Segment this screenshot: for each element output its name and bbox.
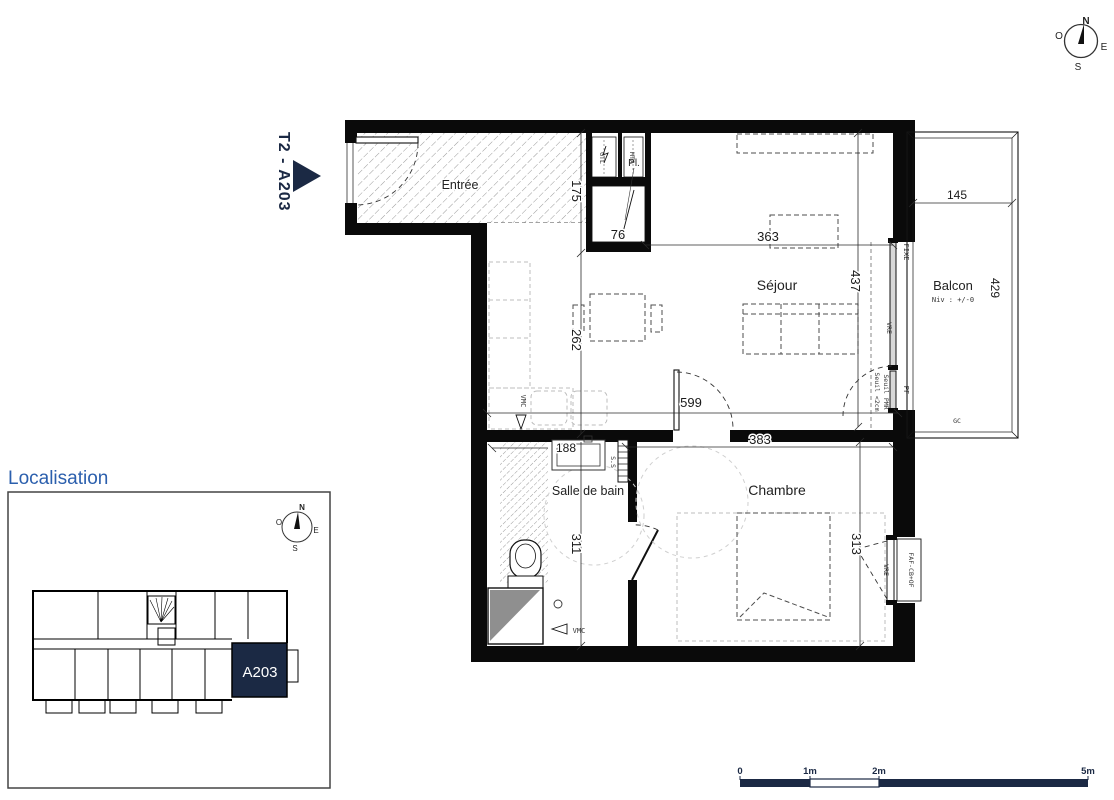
vmc-label-kitchen: VMC: [519, 395, 527, 408]
seuil-2cm-label: Seuil <2cm: [873, 372, 881, 411]
balcon-level-label: Niv : +/-0: [932, 296, 974, 304]
room-label-sdb: Salle de bain: [552, 484, 624, 498]
dim-313: 313: [849, 533, 864, 555]
vmc-triangle-icon-sdb: [552, 624, 567, 634]
entree-zone: Entrée: [347, 133, 586, 223]
scale-0: 0: [737, 766, 742, 777]
localisation-frame: [8, 492, 330, 788]
entrance-door-leaf: [356, 137, 418, 143]
mini-compass-s: S: [292, 544, 297, 553]
scale-bar: 0 1m 2m 5m: [737, 766, 1095, 787]
vmc-label-sdb: VMC: [573, 627, 586, 635]
fixed-window: [890, 242, 896, 366]
scale-5m: 5m: [1081, 766, 1095, 777]
dim-145: 145: [947, 188, 967, 202]
toilet: [508, 540, 543, 588]
localisation-section: Localisation N O E S: [8, 468, 330, 788]
floor-plan-page: T2 - A203 N O E S: [0, 0, 1114, 800]
sideboard: [737, 134, 873, 153]
compass-o: O: [1055, 31, 1063, 42]
shower-tray: [488, 588, 543, 644]
room-label-balcon: Balcon: [933, 278, 973, 293]
dim-175: 175: [569, 180, 584, 202]
pf-label: PF: [902, 386, 910, 394]
dim-363: 363: [757, 229, 779, 244]
dim-76: 76: [611, 227, 625, 242]
dim-437: 437: [848, 270, 863, 292]
vre-label-chambre: VRE: [882, 564, 890, 576]
faf-label: FAF-CB+OF: [907, 552, 915, 587]
sofa: [743, 304, 858, 354]
room-label-chambre: Chambre: [748, 482, 806, 498]
unit-marker: T2 - A203: [275, 132, 321, 212]
unit-a203-label: A203: [242, 664, 277, 681]
vmc-triangle-icon: [516, 415, 526, 429]
dim-383: 383: [749, 432, 771, 447]
dim-262: 262: [569, 329, 584, 351]
seuil-pmr-label: Seuil PMR: [882, 374, 890, 409]
compass-needle-icon: [1078, 24, 1084, 44]
dining-table: [573, 294, 662, 341]
mini-compass-n: N: [299, 503, 305, 512]
gtl-label: GTL: [598, 152, 606, 164]
kitchen-units: VMC: [489, 262, 607, 429]
compass-rose: N O E S: [1055, 16, 1108, 73]
vre-label-sejour: VRE: [885, 322, 893, 334]
compass-e: E: [1101, 42, 1108, 53]
floor-plan-drawing: T2 - A203 N O E S: [0, 0, 1114, 800]
towel-radiator: [618, 440, 628, 482]
unit-marker-label: T2 - A203: [275, 132, 292, 212]
unit-marker-arrow-icon: [293, 160, 321, 192]
floor-drain-icon: [554, 600, 562, 608]
scale-1m: 1m: [803, 766, 817, 777]
mini-compass-e: E: [313, 526, 318, 535]
gc-label: GC: [953, 417, 961, 425]
dim-188: 188: [556, 441, 576, 455]
scale-2m: 2m: [872, 766, 886, 777]
bed: [737, 513, 830, 620]
chambre-window: VRE FAF-CB+OF: [857, 535, 921, 605]
sdb-door-leaf: [632, 530, 658, 580]
dim-599: 599: [680, 395, 702, 410]
sdb-door-swing: [632, 525, 658, 530]
mini-compass-o: O: [276, 518, 282, 527]
chambre-zone: Chambre VRE FAF-CB+OF: [636, 446, 921, 641]
ss-label: S.S: [609, 456, 617, 468]
placard-label: Pl.: [628, 158, 640, 169]
dim-311: 311: [569, 534, 584, 555]
fixe-label: FIXE: [902, 244, 910, 261]
room-label-entree: Entrée: [442, 178, 479, 192]
room-label-sejour: Séjour: [757, 277, 798, 293]
compass-n: N: [1082, 16, 1089, 27]
compass-s: S: [1075, 62, 1082, 73]
tv-unit: [770, 215, 838, 248]
localisation-title: Localisation: [8, 468, 108, 489]
dim-429: 429: [988, 278, 1002, 298]
balcon-zone: 145 429 Balcon Niv : +/-0 GC: [907, 132, 1018, 438]
sejour-window-wall: FIXE VRE PF Seuil <2cm Seuil PMR: [843, 238, 910, 428]
